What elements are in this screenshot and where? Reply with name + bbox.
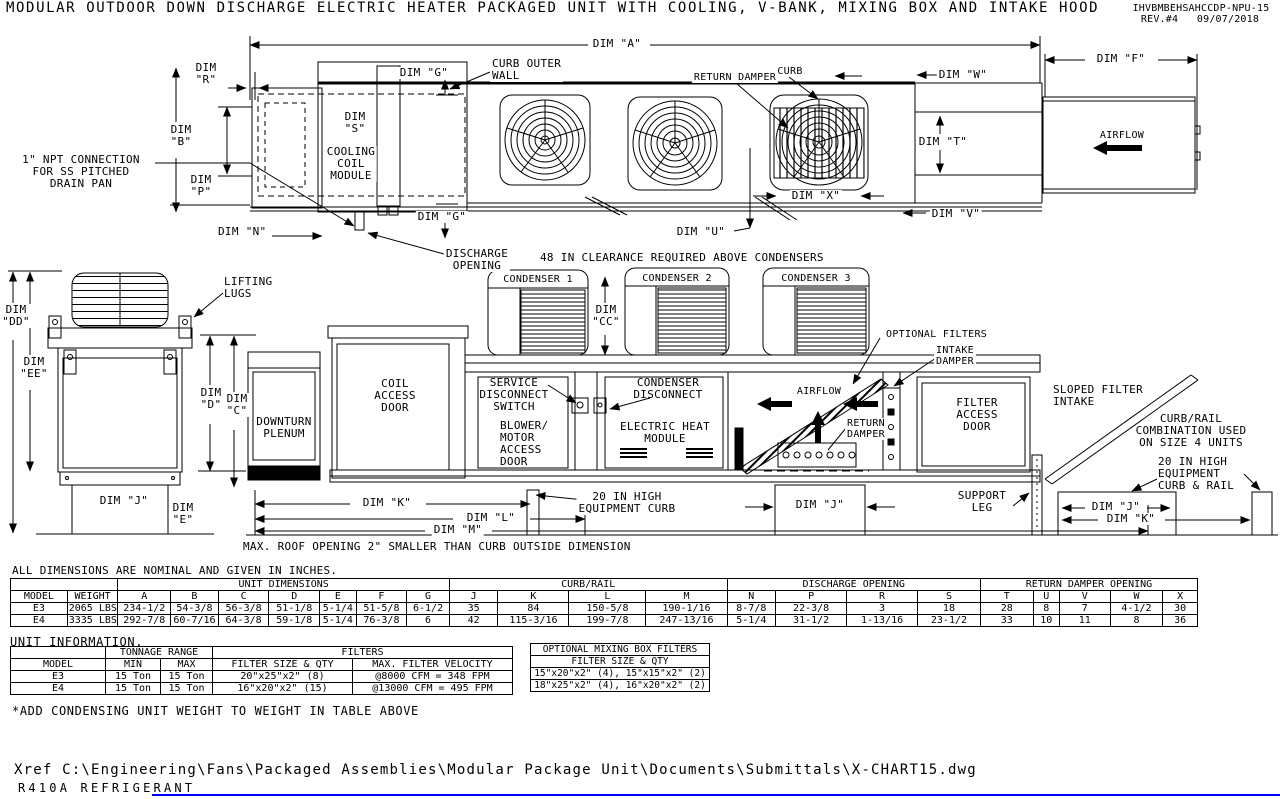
- table-cell: M: [646, 591, 727, 603]
- dim-j-mid-label: DIM "J": [796, 499, 844, 511]
- dim-j-left-label: DIM "J": [100, 495, 148, 507]
- table-cell: 18"x25"x2" (4), 16"x20"x2" (2): [531, 680, 710, 692]
- table-cell: G: [407, 591, 450, 603]
- table-cell: L: [569, 591, 646, 603]
- table-cell: MAX. FILTER VELOCITY: [353, 659, 513, 671]
- unit-information-table: TONNAGE RANGE FILTERS MODELMINMAXFILTER …: [10, 646, 513, 695]
- table-cell: 54-3/8: [171, 603, 219, 615]
- table-cell: 6: [407, 615, 450, 627]
- table-cell: 234-1/2: [118, 603, 171, 615]
- table-cell: 15 Ton: [161, 683, 213, 695]
- doc-number: IHVBMBEHSAHCCDP-NPU-15: [1133, 3, 1270, 14]
- table-cell: 15 Ton: [161, 671, 213, 683]
- dim-m-label: DIM "M": [432, 524, 484, 536]
- dim-r-label: DIM "R": [194, 62, 219, 86]
- curb-rail-combo-label: CURB/RAIL COMBINATION USED ON SIZE 4 UNI…: [1136, 413, 1247, 449]
- table-cell: WEIGHT: [67, 591, 118, 603]
- table-cell: MODEL: [11, 659, 106, 671]
- table-cell: P: [776, 591, 847, 603]
- mixing-header-row: FILTER SIZE & QTY: [531, 656, 710, 668]
- table-cell: 30: [1163, 603, 1198, 615]
- table-cell: D: [269, 591, 320, 603]
- airflow-side-label: AIRFLOW: [797, 386, 841, 397]
- curb-rail-20-label: 20 IN HIGH EQUIPMENT CURB & RAIL: [1158, 456, 1234, 492]
- dim-cc-label: DIM "CC": [590, 304, 622, 328]
- roof-opening-note: MAX. ROOF OPENING 2" SMALLER THAN CURB O…: [243, 541, 631, 553]
- table-cell: 18: [918, 603, 981, 615]
- plan-view-linework: [250, 36, 1197, 230]
- mixing-title-row: OPTIONAL MIXING BOX FILTERS: [531, 644, 710, 656]
- xref-path: Xref C:\Engineering\Fans\Packaged Assemb…: [14, 764, 977, 776]
- table-cell: N: [727, 591, 776, 603]
- table-row-e3: E32065 LBS234-1/254-3/856-3/851-1/85-1/4…: [11, 603, 1198, 615]
- table-cell: 31-1/2: [776, 615, 847, 627]
- table-cell: 59-1/8: [269, 615, 320, 627]
- table-cell: 6-1/2: [407, 603, 450, 615]
- mixing-box-filters-table: OPTIONAL MIXING BOX FILTERS FILTER SIZE …: [530, 643, 710, 692]
- table-cell: V: [1059, 591, 1110, 603]
- dim-k-label: DIM "K": [361, 497, 413, 509]
- npt-connection-label: 1" NPT CONNECTION FOR SS PITCHED DRAIN P…: [22, 154, 140, 190]
- table-cell: X: [1163, 591, 1198, 603]
- airflow-plan-label: AIRFLOW: [1100, 130, 1144, 141]
- table-cell: 60-7/16: [171, 615, 219, 627]
- group-tonnage-range: TONNAGE RANGE: [106, 647, 213, 659]
- table-cell: MODEL: [11, 591, 68, 603]
- intake-damper-label: INTAKE DAMPER: [934, 345, 976, 367]
- plan-fans: [500, 95, 868, 190]
- dim-e-label: DIM "E": [171, 502, 196, 526]
- condenser-3-label: CONDENSER 3: [779, 273, 853, 284]
- dim-u-label: DIM "U": [675, 226, 727, 238]
- table-cell: 16"x20"x2" (15): [213, 683, 353, 695]
- curb-outer-wall-label: CURB OUTER WALL: [490, 58, 563, 82]
- curb-label: CURB: [775, 66, 804, 77]
- discharge-opening-label: DISCHARGE OPENING: [444, 248, 510, 272]
- table-cell: 15 Ton: [106, 683, 161, 695]
- table-cell: W: [1110, 591, 1163, 603]
- table-cell: R: [847, 591, 918, 603]
- filter-access-door-label: FILTER ACCESS DOOR: [956, 397, 998, 433]
- table-cell: 5-1/4: [320, 615, 356, 627]
- table-cell: @8000 CFM = 348 FPM: [353, 671, 513, 683]
- info-header-row: MODELMINMAXFILTER SIZE & QTYMAX. FILTER …: [11, 659, 513, 671]
- drawing-title: MODULAR OUTDOOR DOWN DISCHARGE ELECTRIC …: [6, 2, 1099, 14]
- dim-k-right-label: DIM "K": [1105, 513, 1157, 525]
- table-cell: 7: [1059, 603, 1110, 615]
- dim-ee-label: DIM "EE": [18, 356, 50, 380]
- condenser-1-label: CONDENSER 1: [501, 274, 575, 285]
- table-cell: S: [918, 591, 981, 603]
- mixing-header-cell: FILTER SIZE & QTY: [531, 656, 710, 668]
- group-filters: FILTERS: [213, 647, 513, 659]
- table-cell: 15 Ton: [106, 671, 161, 683]
- dim-c-label: DIM "C": [225, 393, 250, 417]
- table-cell: MAX: [161, 659, 213, 671]
- info-row-e4: E415 Ton15 Ton16"x20"x2" (15)@13000 CFM …: [11, 683, 513, 695]
- table-cell: 3335 LBS: [67, 615, 118, 627]
- table-cell: 247-13/16: [646, 615, 727, 627]
- dim-p-label: DIM "P": [189, 174, 214, 198]
- table-row-e4: E43335 LBS292-7/860-7/1664-3/859-1/85-1/…: [11, 615, 1198, 627]
- dim-t-plan-label: DIM "T": [917, 136, 969, 148]
- dimension-table-body: UNIT DIMENSIONS CURB/RAIL DISCHARGE OPEN…: [11, 579, 1198, 627]
- group-return-damper-opening: RETURN DAMPER OPENING: [980, 579, 1197, 591]
- group-discharge-opening: DISCHARGE OPENING: [727, 579, 980, 591]
- table-cell: 35: [449, 603, 498, 615]
- table-cell: 10: [1033, 615, 1059, 627]
- table-cell: 76-3/8: [356, 615, 407, 627]
- dimension-table: UNIT DIMENSIONS CURB/RAIL DISCHARGE OPEN…: [10, 578, 1198, 627]
- condenser-2-label: CONDENSER 2: [640, 273, 714, 284]
- dim-g-bottom-label: DIM "G": [416, 211, 468, 223]
- table-cell: E3: [11, 603, 68, 615]
- table-cell: 84: [498, 603, 569, 615]
- drawing-sheet: MODULAR OUTDOOR DOWN DISCHARGE ELECTRIC …: [0, 0, 1280, 799]
- electric-heat-module-label: ELECTRIC HEAT MODULE: [620, 421, 710, 445]
- column-header-row: MODELWEIGHTABCDEFGJKLMNPRSTUVWX: [11, 591, 1198, 603]
- coil-access-door-label: COIL ACCESS DOOR: [374, 378, 416, 414]
- optional-filters-label: OPTIONAL FILTERS: [884, 329, 989, 340]
- lifting-lugs-label: LIFTING LUGS: [224, 276, 272, 300]
- group-header-row: UNIT DIMENSIONS CURB/RAIL DISCHARGE OPEN…: [11, 579, 1198, 591]
- corner-cell: [11, 647, 106, 659]
- dim-f-label: DIM "F": [1095, 53, 1147, 65]
- table-cell: 64-3/8: [218, 615, 269, 627]
- table-cell: U: [1033, 591, 1059, 603]
- table-cell: K: [498, 591, 569, 603]
- table-cell: 11: [1059, 615, 1110, 627]
- info-row-e3: E315 Ton15 Ton20"x25"x2" (8)@8000 CFM = …: [11, 671, 513, 683]
- table-cell: @13000 CFM = 495 FPM: [353, 683, 513, 695]
- table-cell: 150-5/8: [569, 603, 646, 615]
- corner-cell: [11, 579, 118, 591]
- table-cell: 3: [847, 603, 918, 615]
- table-cell: 22-3/8: [776, 603, 847, 615]
- table-cell: F: [356, 591, 407, 603]
- table-cell: 51-5/8: [356, 603, 407, 615]
- table-cell: T: [980, 591, 1033, 603]
- cooling-coil-module-label: COOLING COIL MODULE: [325, 146, 377, 182]
- table-cell: E4: [11, 683, 106, 695]
- table-cell: E3: [11, 671, 106, 683]
- dim-n-label: DIM "N": [216, 226, 268, 238]
- blower-motor-access-label: BLOWER/ MOTOR ACCESS DOOR: [500, 420, 548, 468]
- dim-b-label: DIM "B": [169, 124, 194, 148]
- refrigerant-note: R410A REFRIGERANT: [18, 782, 195, 794]
- dim-a-label: DIM "A": [591, 38, 643, 50]
- table-cell: FILTER SIZE & QTY: [213, 659, 353, 671]
- sloped-filter-intake-label: SLOPED FILTER INTAKE: [1053, 384, 1143, 408]
- plan-intake-hood: [1043, 97, 1200, 193]
- table-cell: 4-1/2: [1110, 603, 1163, 615]
- table-cell: 20"x25"x2" (8): [213, 671, 353, 683]
- table-cell: 36: [1163, 615, 1198, 627]
- info-group-row: TONNAGE RANGE FILTERS: [11, 647, 513, 659]
- table-cell: 56-3/8: [218, 603, 269, 615]
- downturn-plenum-label: DOWNTURN PLENUM: [256, 416, 311, 440]
- group-curb-rail: CURB/RAIL: [449, 579, 727, 591]
- table-cell: 42: [449, 615, 498, 627]
- table-cell: E4: [11, 615, 68, 627]
- mixing-box-filters-body: OPTIONAL MIXING BOX FILTERS FILTER SIZE …: [531, 644, 710, 692]
- table-cell: 1-13/16: [847, 615, 918, 627]
- table-cell: 5-1/4: [727, 615, 776, 627]
- table-cell: C: [218, 591, 269, 603]
- table-cell: 51-1/8: [269, 603, 320, 615]
- dim-v-label: DIM "V": [930, 208, 982, 220]
- table-cell: 2065 LBS: [67, 603, 118, 615]
- return-damper-side-label: RETURN DAMPER: [845, 418, 887, 440]
- table-cell: 15"x20"x2" (4), 15"x15"x2" (2): [531, 668, 710, 680]
- table-cell: 33: [980, 615, 1033, 627]
- table-cell: J: [449, 591, 498, 603]
- unit-information-body: TONNAGE RANGE FILTERS MODELMINMAXFILTER …: [11, 647, 513, 695]
- dim-w-label: DIM "W": [937, 69, 989, 81]
- table-cell: 8: [1033, 603, 1059, 615]
- revision-label: REV.#4 09/07/2018: [1141, 14, 1259, 25]
- clearance-note: 48 IN CLEARANCE REQUIRED ABOVE CONDENSER…: [540, 252, 824, 264]
- table-cell: 115-3/16: [498, 615, 569, 627]
- return-damper-plan-label: RETURN DAMPER: [692, 72, 778, 83]
- service-disconnect-label: SERVICE DISCONNECT SWITCH: [479, 377, 548, 413]
- table-cell: 5-1/4: [320, 603, 356, 615]
- table-cell: E: [320, 591, 356, 603]
- condenser-disconnect-label: CONDENSER DISCONNECT: [633, 377, 702, 401]
- table-cell: 28: [980, 603, 1033, 615]
- table-cell: 292-7/8: [118, 615, 171, 627]
- table-cell: 8-7/8: [727, 603, 776, 615]
- dim-s-label: DIM "S": [343, 111, 368, 135]
- table-cell: 23-1/2: [918, 615, 981, 627]
- dimensions-note: ALL DIMENSIONS ARE NOMINAL AND GIVEN IN …: [12, 565, 337, 577]
- equipment-curb-20-label: 20 IN HIGH EQUIPMENT CURB: [577, 491, 678, 515]
- mixing-row-e3: 15"x20"x2" (4), 15"x15"x2" (2): [531, 668, 710, 680]
- table-cell: A: [118, 591, 171, 603]
- mixing-title-cell: OPTIONAL MIXING BOX FILTERS: [531, 644, 710, 656]
- table-cell: 8: [1110, 615, 1163, 627]
- mixing-row-e4: 18"x25"x2" (4), 16"x20"x2" (2): [531, 680, 710, 692]
- group-unit-dimensions: UNIT DIMENSIONS: [118, 579, 449, 591]
- add-weight-footnote: *ADD CONDENSING UNIT WEIGHT TO WEIGHT IN…: [12, 705, 419, 718]
- table-cell: MIN: [106, 659, 161, 671]
- table-cell: 190-1/16: [646, 603, 727, 615]
- dim-dd-label: DIM "DD": [0, 304, 32, 328]
- table-cell: 199-7/8: [569, 615, 646, 627]
- dim-x-label: DIM "X": [790, 190, 842, 202]
- dim-d-label: DIM "D": [199, 387, 224, 411]
- airflow-left-arrow: [1093, 141, 1142, 155]
- support-leg-label: SUPPORT LEG: [958, 490, 1006, 514]
- table-cell: B: [171, 591, 219, 603]
- dim-g-top-label: DIM "G": [398, 67, 450, 79]
